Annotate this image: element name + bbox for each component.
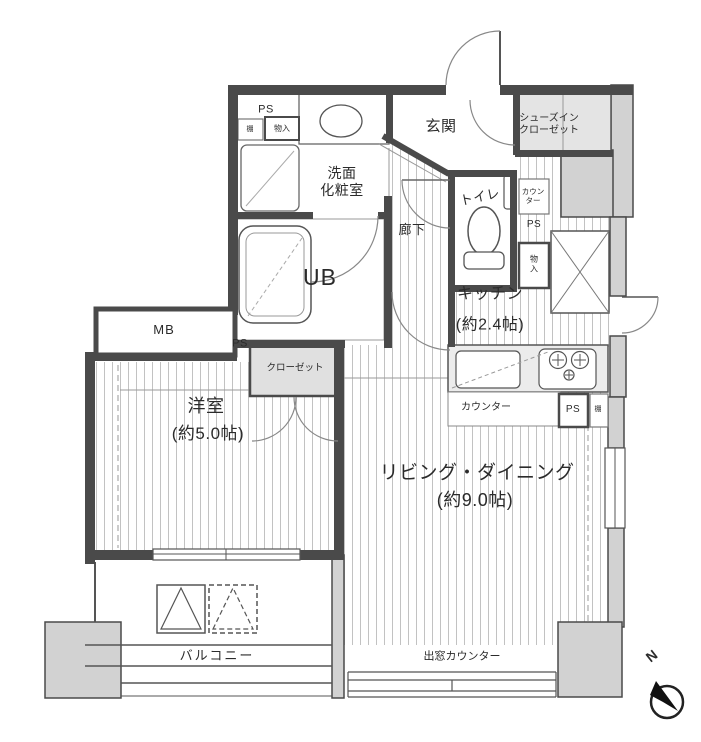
entrance-door-swing (446, 31, 500, 85)
floor-plan-drawing (0, 0, 701, 742)
label-closet: クローゼット (266, 362, 323, 373)
balcony-fixtures (85, 562, 332, 696)
shoe-closet-door-swing (470, 100, 515, 145)
ac-unit-space (157, 585, 205, 633)
label-living-dining-size: (約9.0帖) (437, 490, 514, 512)
label-western-room: 洋室 (188, 396, 225, 418)
label-counter: カウンター (461, 402, 511, 414)
label-counter-small: カウン ター (522, 187, 545, 205)
label-ps-counter: PS (566, 404, 580, 416)
label-storage-kitchen: 物 入 (530, 254, 538, 273)
label-meter-box: MB (153, 322, 175, 338)
label-corridor: 廊下 (398, 222, 425, 238)
label-bay-window-counter: 出窓カウンター (424, 650, 501, 663)
label-balcony: バルコニー (180, 648, 255, 664)
ac-unit-space-dashed (209, 585, 257, 633)
sink-basin (320, 105, 362, 137)
label-storage-washroom: 物入 (274, 124, 290, 134)
label-unit-bath: UB (303, 264, 337, 292)
kitchen-door-swing (622, 297, 658, 333)
compass (650, 681, 683, 718)
label-western-room-size: (約5.0帖) (172, 424, 244, 444)
label-ps-kitchen: PS (527, 219, 541, 231)
label-living-dining: リビング・ダイニング (379, 463, 574, 486)
label-ps-closet: PS (232, 337, 248, 350)
toilet-base (464, 252, 504, 269)
label-washroom: 洗面 化粧室 (320, 165, 364, 199)
label-shoe-closet: シューズイン クローゼット (519, 113, 579, 137)
label-shelf-washroom: 棚 (247, 126, 254, 134)
toilet-bowl (468, 207, 500, 255)
label-entrance: 玄関 (425, 118, 456, 136)
label-shelf-counter: 棚 (595, 406, 602, 414)
label-ps-washroom: PS (258, 103, 274, 116)
label-kitchen-size: (約2.4帖) (456, 315, 524, 334)
floor-plan: 玄関 シューズイン クローゼット 洗面 化粧室 トイレ UB 廊下 キッチン (… (0, 0, 701, 742)
label-kitchen: キッチン (457, 284, 523, 303)
bay-window (348, 672, 556, 697)
